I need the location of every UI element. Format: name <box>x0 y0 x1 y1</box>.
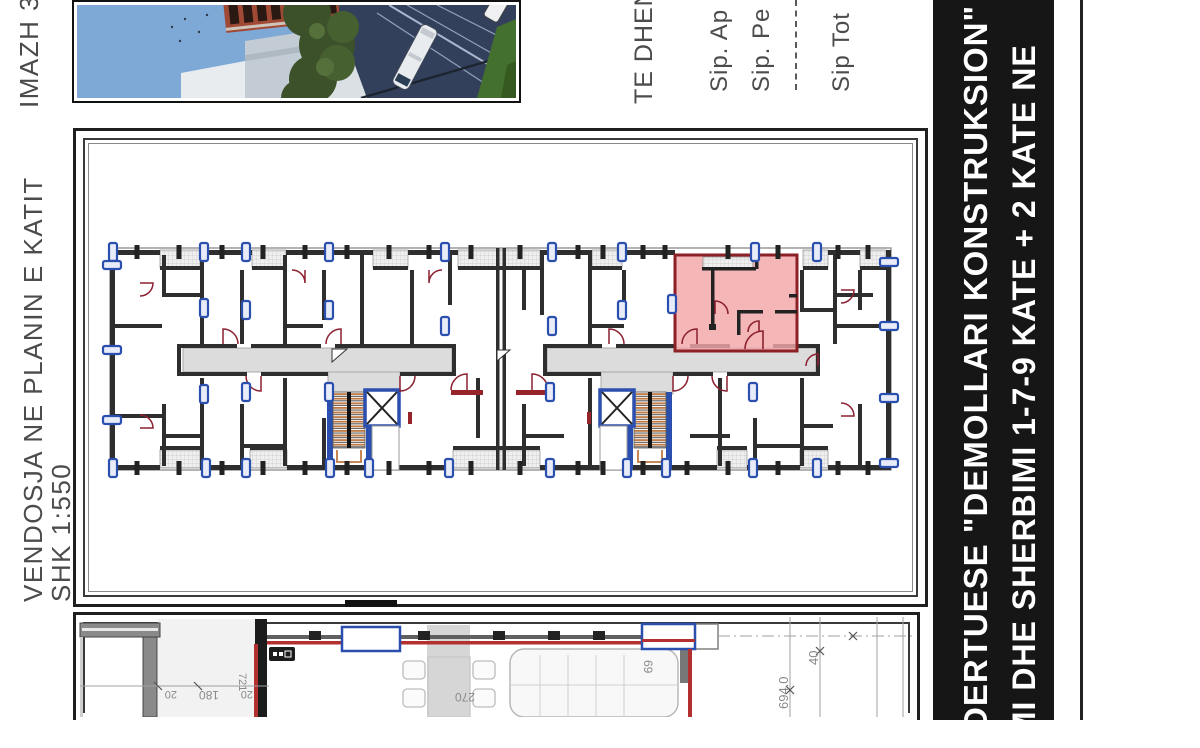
data-table-divider <box>795 0 797 90</box>
plan-location-label: VENDOSJA NE PLANIN E KATIT <box>18 176 49 602</box>
electrical-panel-icon <box>269 647 295 661</box>
site-photo <box>72 0 521 103</box>
highlighted-apartment <box>675 255 797 351</box>
dim-180: 180 <box>199 688 219 702</box>
data-row-second: Sip. Pe <box>748 8 776 92</box>
title-bar: DERTUESE "DEMOLLARI KONSTRUKSION" IMI DH… <box>933 0 1054 720</box>
title-bar-line1: DERTUESE "DEMOLLARI KONSTRUKSION" <box>957 5 995 731</box>
data-table-header: TE DHEN <box>630 0 659 104</box>
apartment-detail-drawing: 20 180 721 20 270 69 694.0 40 <box>76 615 917 717</box>
floor-plan-sheet <box>73 128 928 607</box>
photo-label: IMAZH 3 <box>14 0 45 108</box>
sheet-rule-line <box>1080 0 1083 720</box>
apartment-detail-sheet: 20 180 721 20 270 69 694.0 40 <box>73 612 920 720</box>
title-bar-line2: IMI DHE SHERBIMI 1-7-9 KATE + 2 KATE NE <box>1006 44 1043 748</box>
dim-69: 69 <box>641 660 655 674</box>
dim-694: 694.0 <box>776 676 791 709</box>
data-row-apartment: Sip. Ap <box>706 9 734 92</box>
dim-20a: 20 <box>165 688 177 700</box>
dim-40: 40 <box>806 651 821 665</box>
dim-20b: 20 <box>241 688 253 700</box>
dim-270: 270 <box>455 690 475 704</box>
fold-mark <box>345 600 397 607</box>
floor-plan-drawing <box>76 131 925 604</box>
site-photo-render <box>77 5 516 98</box>
data-row-total: Sip Tot <box>828 12 856 92</box>
